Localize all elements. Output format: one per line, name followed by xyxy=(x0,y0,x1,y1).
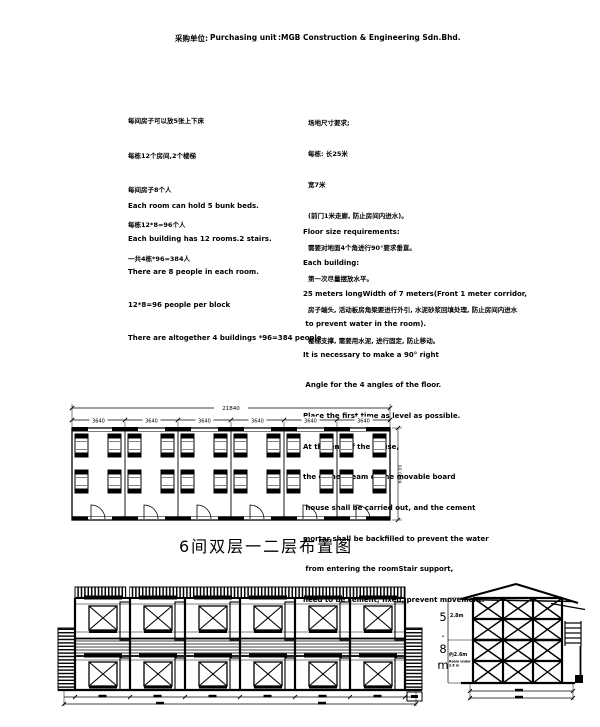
floor-plan-drawing: 21840 3640 3640 3640 3640 3640 3640 xyxy=(64,398,404,550)
note-line: There are 8 people in each room. xyxy=(128,267,322,278)
note-line: 12*8=96 people per block xyxy=(128,300,322,311)
overall-height-label: 5 . 8 m xyxy=(436,609,450,673)
height-char: 5 xyxy=(439,609,446,625)
front-elevation-drawing xyxy=(56,580,424,710)
svg-text:3640: 3640 xyxy=(357,418,370,424)
note-line: It is necessary to make a 90° right xyxy=(303,350,527,360)
note-line: There are altogether 4 buildings *96=384… xyxy=(128,333,322,344)
svg-text:3640: 3640 xyxy=(304,418,317,424)
height-char: m xyxy=(437,657,448,673)
elevation-doors xyxy=(120,602,405,690)
height-dimensions: 2.8m 约2.6m Room under 2.6 m xyxy=(448,598,473,683)
note-line: 宽7米 xyxy=(308,180,517,190)
svg-text:2.8m: 2.8m xyxy=(450,613,464,619)
elevation-dimensions xyxy=(62,691,418,706)
notes-english-left: Each room can hold 5 bunk beds. Each bui… xyxy=(128,179,322,366)
note-line: Floor size requirements: xyxy=(303,227,527,237)
note-line: Angle for the 4 angles of the floor. xyxy=(303,380,527,390)
purchasing-unit-label-en: Purchasing unit xyxy=(210,33,277,42)
svg-text:6980.00: 6980.00 xyxy=(398,465,404,484)
note-line: Each building: xyxy=(303,258,527,268)
side-stair xyxy=(565,621,583,683)
height-char: . xyxy=(441,625,445,641)
note-line: 每间房子可以放5张上下床 xyxy=(128,116,204,128)
purchasing-unit-label-cn: 采购单位: xyxy=(175,33,208,44)
side-dimensions xyxy=(468,684,575,700)
construction-spec-document: 采购单位: Purchasing unit :MGB Construction … xyxy=(0,0,600,727)
note-line: Each room can hold 5 bunk beds. xyxy=(128,201,322,212)
purchasing-unit-value: :MGB Construction & Engineering Sdn.Bhd. xyxy=(278,33,461,42)
svg-text:3640: 3640 xyxy=(92,418,105,424)
note-line: 场地尺寸要求; xyxy=(308,118,517,128)
svg-text:2.6 m: 2.6 m xyxy=(449,664,460,668)
floor-plan-caption: 6间双层一二层布置图 xyxy=(179,533,353,557)
svg-text:约2.6m: 约2.6m xyxy=(449,651,467,658)
bunk-beds xyxy=(75,434,386,493)
note-line: 每栋12个房间,2个楼梯 xyxy=(128,151,204,163)
svg-text:21840: 21840 xyxy=(222,406,240,412)
dimension-bays: 3640 3640 3640 3640 3640 3640 xyxy=(70,417,392,428)
svg-text:3640: 3640 xyxy=(145,418,158,424)
note-line: Each building has 12 rooms.2 stairs. xyxy=(128,234,322,245)
height-char: 8 xyxy=(439,641,446,657)
svg-text:3640: 3640 xyxy=(251,418,264,424)
note-line: 每栋: 长25米 xyxy=(308,149,517,159)
svg-text:3640: 3640 xyxy=(198,418,211,424)
dimension-depth: 6980.00 xyxy=(392,426,404,522)
note-line: 25 meters longWidth of 7 meters(Front 1 … xyxy=(303,289,527,299)
note-line: to prevent water in the room). xyxy=(303,319,527,329)
